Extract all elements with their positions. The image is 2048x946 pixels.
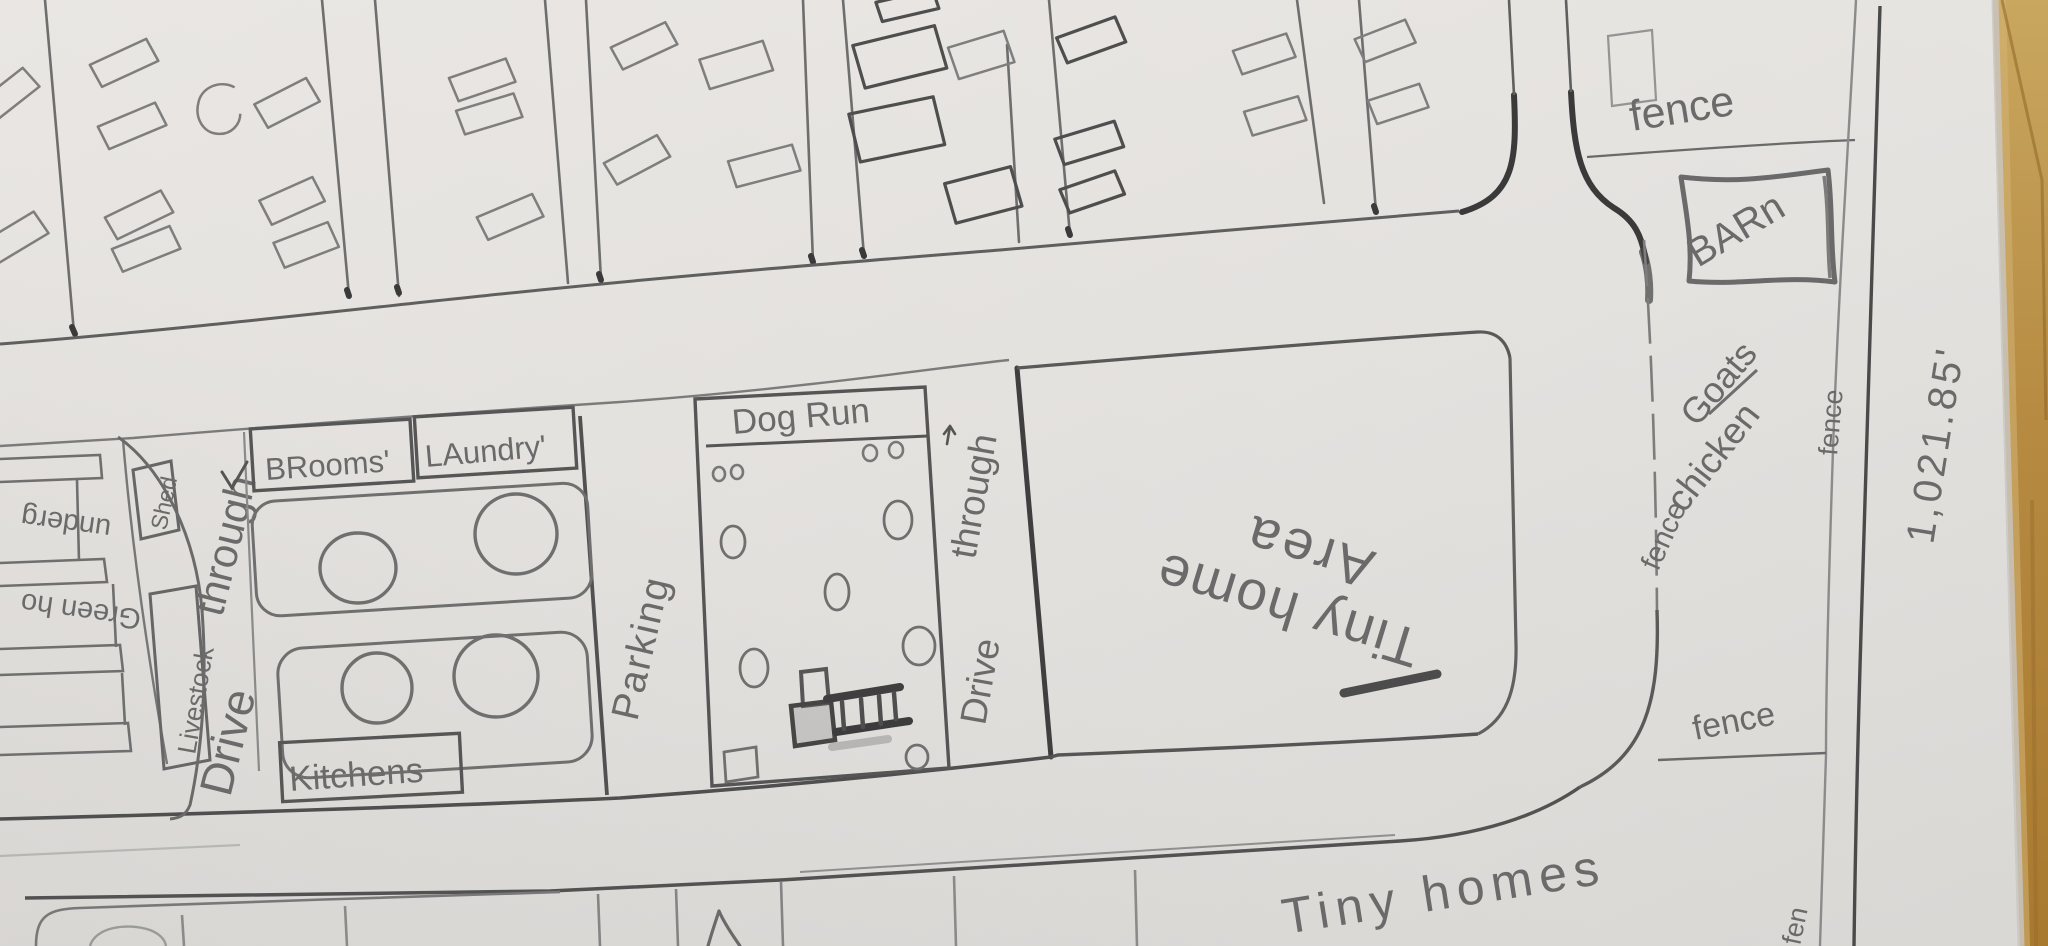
svg-text:fence: fence xyxy=(1813,388,1849,456)
